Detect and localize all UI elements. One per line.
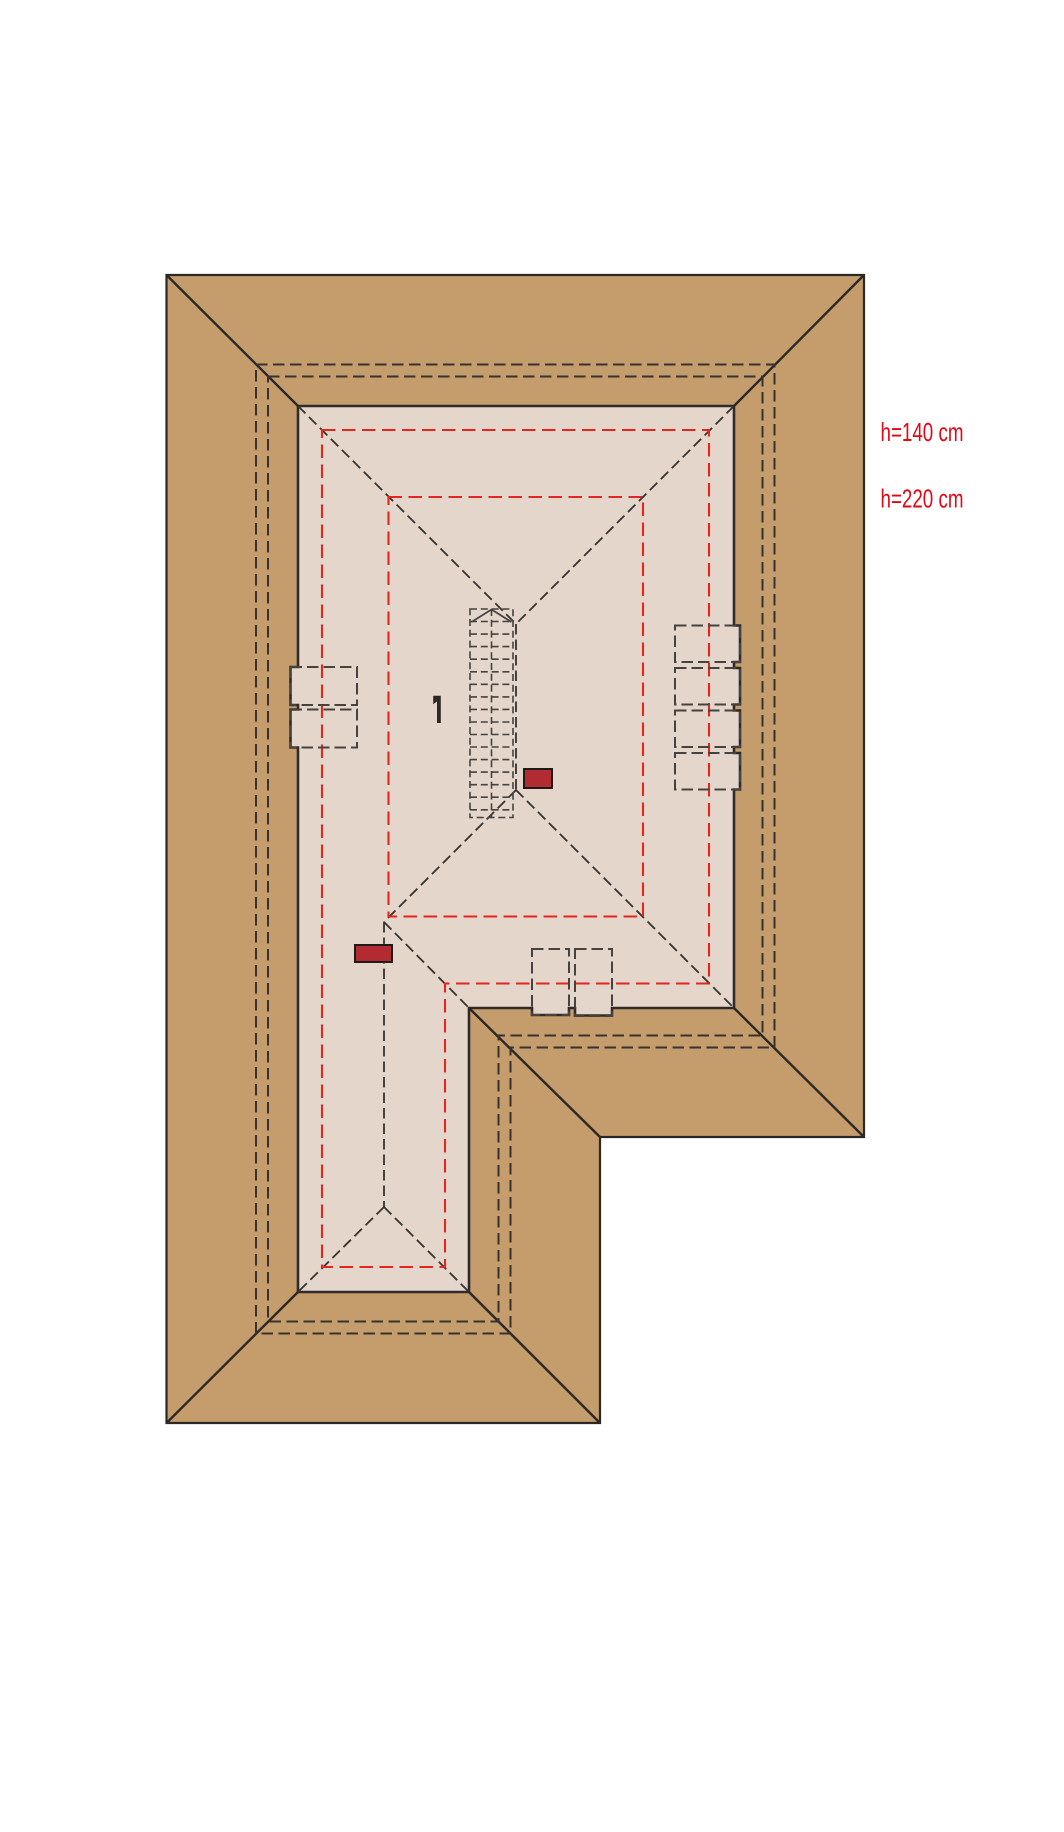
- svg-text:h=140 cm: h=140 cm: [881, 417, 964, 447]
- svg-text:h=220 cm: h=220 cm: [881, 484, 964, 514]
